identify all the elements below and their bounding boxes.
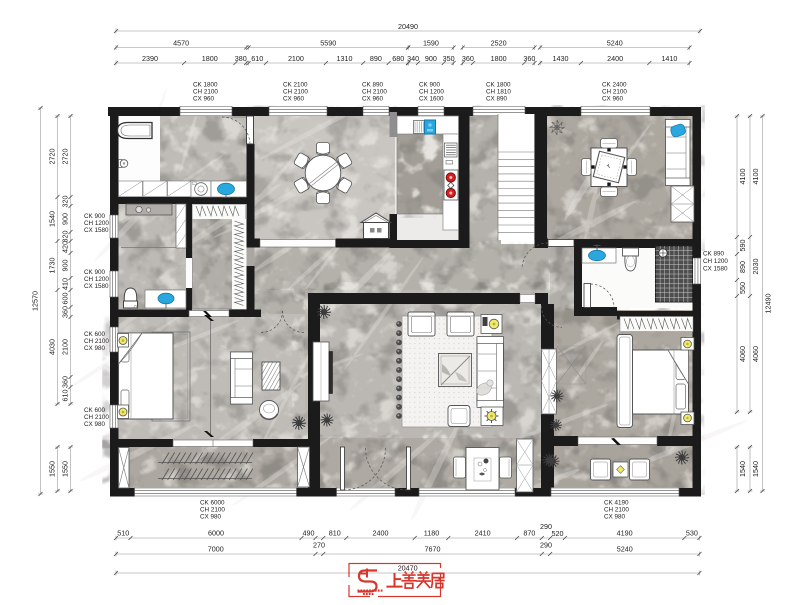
svg-text:2100: 2100 bbox=[288, 54, 304, 63]
svg-text:350: 350 bbox=[443, 54, 455, 63]
svg-text:320: 320 bbox=[61, 196, 70, 208]
svg-text:360: 360 bbox=[61, 306, 70, 318]
svg-text:900: 900 bbox=[61, 260, 70, 272]
svg-text:1800: 1800 bbox=[491, 54, 507, 63]
svg-text:1550: 1550 bbox=[61, 461, 70, 477]
svg-text:2390: 2390 bbox=[142, 54, 158, 63]
svg-text:870: 870 bbox=[523, 529, 535, 538]
svg-text:900: 900 bbox=[61, 213, 70, 225]
svg-text:CX 1600: CX 1600 bbox=[419, 96, 444, 103]
svg-text:290: 290 bbox=[540, 522, 552, 531]
svg-text:7670: 7670 bbox=[425, 545, 441, 554]
svg-text:320: 320 bbox=[61, 231, 70, 243]
svg-text:1310: 1310 bbox=[337, 54, 353, 63]
svg-text:CH 2100: CH 2100 bbox=[84, 338, 109, 345]
svg-text:4190: 4190 bbox=[617, 529, 633, 538]
svg-text:CK 6000: CK 6000 bbox=[200, 500, 225, 507]
svg-text:CH 2100: CH 2100 bbox=[84, 414, 109, 421]
svg-text:2400: 2400 bbox=[373, 529, 389, 538]
svg-text:CK 900: CK 900 bbox=[84, 213, 106, 220]
svg-text:550: 550 bbox=[738, 282, 747, 294]
svg-text:20490: 20490 bbox=[398, 22, 418, 31]
svg-text:530: 530 bbox=[686, 529, 698, 538]
svg-text:CH 2100: CH 2100 bbox=[362, 89, 387, 96]
svg-text:2100: 2100 bbox=[61, 339, 70, 355]
svg-text:2410: 2410 bbox=[475, 529, 491, 538]
svg-text:CK 890: CK 890 bbox=[703, 251, 725, 258]
svg-text:4100: 4100 bbox=[738, 169, 747, 185]
svg-text:CH 1810: CH 1810 bbox=[486, 89, 511, 96]
svg-text:360: 360 bbox=[523, 54, 535, 63]
svg-text:CK 1800: CK 1800 bbox=[193, 82, 218, 89]
svg-text:2720: 2720 bbox=[48, 149, 57, 165]
svg-text:1410: 1410 bbox=[661, 54, 677, 63]
svg-text:600: 600 bbox=[61, 293, 70, 305]
svg-text:20470: 20470 bbox=[398, 564, 418, 573]
svg-text:CK 900: CK 900 bbox=[84, 269, 106, 276]
svg-text:CK 900: CK 900 bbox=[419, 82, 441, 89]
svg-text:CX 960: CX 960 bbox=[283, 96, 305, 103]
svg-text:890: 890 bbox=[370, 54, 382, 63]
svg-text:360: 360 bbox=[61, 376, 70, 388]
svg-text:420: 420 bbox=[61, 241, 70, 253]
svg-text:CH 2100: CH 2100 bbox=[193, 89, 218, 96]
svg-text:2400: 2400 bbox=[607, 54, 623, 63]
svg-text:CX 980: CX 980 bbox=[84, 421, 106, 428]
svg-text:510: 510 bbox=[117, 529, 129, 538]
svg-text:290: 290 bbox=[540, 541, 552, 550]
svg-text:CX 1580: CX 1580 bbox=[84, 283, 109, 290]
svg-text:520: 520 bbox=[552, 529, 564, 538]
svg-text:4100: 4100 bbox=[751, 169, 760, 185]
svg-text:1730: 1730 bbox=[48, 258, 57, 274]
svg-text:590: 590 bbox=[738, 240, 747, 252]
svg-text:CK 890: CK 890 bbox=[362, 82, 384, 89]
svg-text:610: 610 bbox=[251, 54, 263, 63]
svg-text:360: 360 bbox=[462, 54, 474, 63]
svg-text:900: 900 bbox=[425, 54, 437, 63]
svg-text:CH 2100: CH 2100 bbox=[604, 507, 629, 514]
svg-text:610: 610 bbox=[61, 390, 70, 402]
svg-text:410: 410 bbox=[61, 278, 70, 290]
svg-text:CK 4190: CK 4190 bbox=[604, 500, 629, 507]
svg-text:5240: 5240 bbox=[607, 39, 623, 48]
svg-text:CX 960: CX 960 bbox=[602, 96, 624, 103]
svg-text:CH 2100: CH 2100 bbox=[602, 89, 627, 96]
svg-text:CH 1200: CH 1200 bbox=[84, 220, 109, 227]
svg-text:CH 2100: CH 2100 bbox=[283, 89, 308, 96]
svg-text:4030: 4030 bbox=[48, 339, 57, 355]
svg-text:CH 1200: CH 1200 bbox=[84, 276, 109, 283]
svg-text:12490: 12490 bbox=[764, 294, 773, 314]
svg-text:CX 890: CX 890 bbox=[486, 96, 508, 103]
svg-text:1180: 1180 bbox=[424, 529, 439, 538]
svg-text:2520: 2520 bbox=[491, 39, 507, 48]
svg-text:5590: 5590 bbox=[320, 39, 336, 48]
svg-text:CH 2100: CH 2100 bbox=[200, 507, 225, 514]
svg-text:1800: 1800 bbox=[202, 54, 218, 63]
svg-text:1540: 1540 bbox=[738, 461, 747, 477]
svg-text:CK 600: CK 600 bbox=[84, 331, 106, 338]
svg-text:CX 1580: CX 1580 bbox=[84, 227, 109, 234]
svg-text:4060: 4060 bbox=[751, 346, 760, 362]
svg-text:380: 380 bbox=[235, 54, 247, 63]
svg-text:5240: 5240 bbox=[617, 545, 633, 554]
svg-text:CK 600: CK 600 bbox=[84, 407, 106, 414]
svg-text:2030: 2030 bbox=[751, 259, 760, 275]
svg-text:1550: 1550 bbox=[48, 461, 57, 477]
svg-text:CX 960: CX 960 bbox=[362, 96, 384, 103]
svg-text:4570: 4570 bbox=[173, 39, 189, 48]
svg-text:CX 980: CX 980 bbox=[604, 514, 626, 521]
svg-text:CX 1580: CX 1580 bbox=[703, 266, 728, 273]
svg-text:CX 960: CX 960 bbox=[193, 96, 215, 103]
svg-text:340: 340 bbox=[407, 54, 419, 63]
svg-text:CX 980: CX 980 bbox=[84, 345, 106, 352]
svg-text:CK 1800: CK 1800 bbox=[486, 82, 511, 89]
svg-text:CH 1200: CH 1200 bbox=[703, 258, 728, 265]
svg-text:1540: 1540 bbox=[751, 461, 760, 477]
svg-text:2720: 2720 bbox=[61, 149, 70, 165]
svg-text:1540: 1540 bbox=[48, 211, 57, 227]
svg-text:12570: 12570 bbox=[31, 291, 40, 311]
svg-text:7000: 7000 bbox=[208, 545, 224, 554]
svg-text:4060: 4060 bbox=[738, 346, 747, 362]
svg-text:CX 980: CX 980 bbox=[200, 514, 222, 521]
svg-text:CH 1200: CH 1200 bbox=[419, 89, 444, 96]
svg-text:1590: 1590 bbox=[423, 39, 439, 48]
svg-text:890: 890 bbox=[738, 261, 747, 273]
svg-text:CK 2100: CK 2100 bbox=[283, 82, 308, 89]
svg-text:1430: 1430 bbox=[553, 54, 569, 63]
svg-text:810: 810 bbox=[329, 529, 341, 538]
svg-text:6000: 6000 bbox=[208, 529, 224, 538]
svg-text:270: 270 bbox=[313, 541, 325, 550]
svg-text:490: 490 bbox=[303, 529, 315, 538]
svg-text:680: 680 bbox=[392, 54, 404, 63]
svg-text:CK 2400: CK 2400 bbox=[602, 82, 627, 89]
